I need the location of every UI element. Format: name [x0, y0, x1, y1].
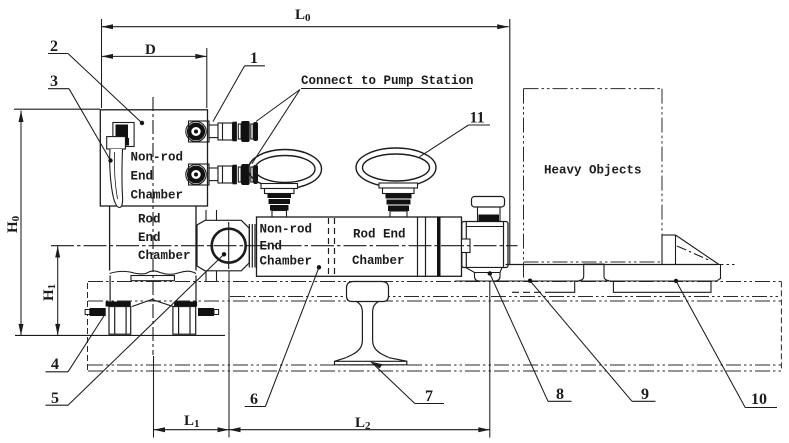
svg-text:Heavy Objects: Heavy Objects — [544, 164, 642, 178]
svg-text:1: 1 — [250, 50, 258, 67]
svg-text:Rod: Rod — [138, 213, 161, 227]
svg-text:10: 10 — [751, 391, 767, 408]
svg-text:Non-rod: Non-rod — [131, 151, 184, 165]
svg-text:8: 8 — [556, 386, 564, 403]
svg-text:D: D — [145, 42, 156, 58]
svg-text:L0: L0 — [295, 7, 311, 24]
svg-text:End: End — [138, 231, 161, 245]
svg-text:End: End — [131, 170, 154, 184]
svg-text:L2: L2 — [355, 415, 371, 432]
svg-text:11: 11 — [470, 110, 485, 127]
svg-text:Rod End: Rod End — [353, 228, 406, 242]
svg-text:7: 7 — [425, 388, 433, 405]
svg-text:4: 4 — [51, 356, 59, 373]
svg-text:5: 5 — [51, 390, 59, 407]
svg-text:6: 6 — [250, 391, 258, 408]
svg-text:H0: H0 — [5, 215, 22, 233]
svg-text:Chamber: Chamber — [138, 249, 191, 263]
svg-text:2: 2 — [50, 38, 58, 55]
svg-text:Chamber: Chamber — [260, 255, 313, 269]
svg-text:9: 9 — [641, 386, 649, 403]
svg-text:Chamber: Chamber — [352, 254, 405, 268]
svg-text:L1: L1 — [184, 413, 200, 430]
svg-text:3: 3 — [50, 73, 58, 90]
svg-text:Non-rod: Non-rod — [260, 223, 313, 237]
svg-text:Connect to Pump Station: Connect to Pump Station — [301, 74, 474, 88]
svg-text:H1: H1 — [41, 284, 58, 301]
svg-text:End: End — [260, 240, 283, 254]
svg-text:Chamber: Chamber — [131, 189, 184, 203]
